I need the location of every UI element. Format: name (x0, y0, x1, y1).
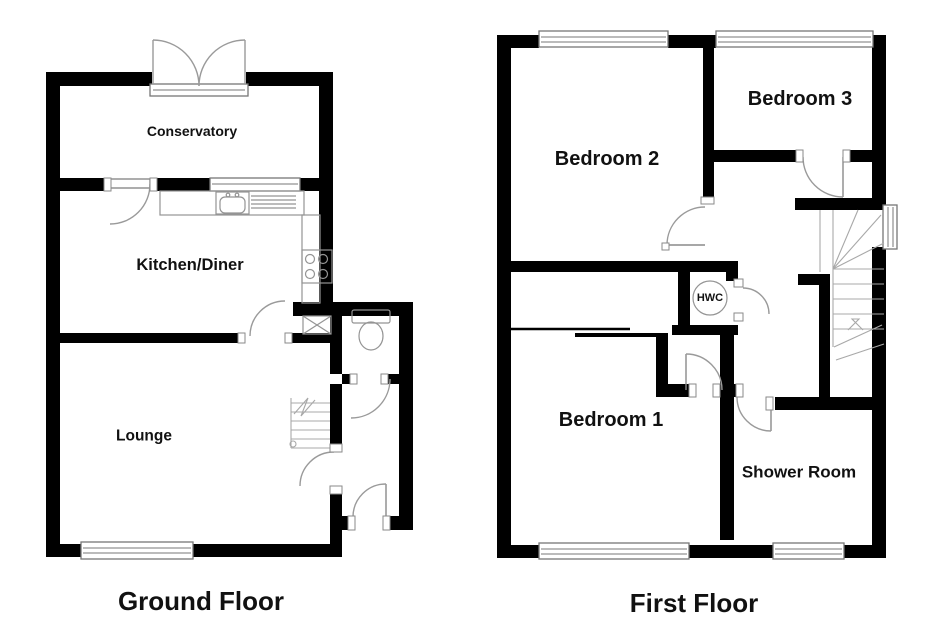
stairs-ground (290, 398, 330, 448)
ground-floor: Conservatory Kitchen/Diner Lounge Ground… (46, 40, 413, 616)
shower-room-window (773, 543, 844, 559)
shower-room-door (736, 384, 773, 431)
kitchen-sink (216, 192, 296, 214)
conservatory-french-doors (150, 40, 248, 96)
title-first-floor: First Floor (630, 588, 759, 618)
stairs-side-window (883, 205, 897, 249)
ground-floor-walls (46, 72, 413, 557)
label-lounge: Lounge (116, 428, 172, 445)
label-kitchen-diner: Kitchen/Diner (136, 256, 244, 274)
wc-door (350, 374, 390, 418)
label-bedroom2: Bedroom 2 (555, 148, 659, 170)
kitchen-conservatory-window (210, 178, 300, 191)
lounge-hall-door (300, 444, 342, 494)
bedroom3-window (716, 31, 873, 47)
lounge-window (81, 542, 193, 559)
bedroom1-window (539, 543, 689, 559)
conservatory-kitchen-door (104, 178, 157, 224)
title-ground-floor: Ground Floor (118, 586, 284, 616)
sink-drainer (251, 196, 296, 208)
bedroom3-door (796, 150, 850, 197)
label-bedroom1: Bedroom 1 (559, 409, 663, 431)
hwc-cupboard-door (734, 279, 769, 321)
front-door (348, 484, 390, 530)
first-floor: HWC Bedroom 2 Bedroom 3 Bedroom 1 Shower… (497, 31, 897, 618)
bedroom2-window (539, 31, 668, 47)
floor-plan-page: Conservatory Kitchen/Diner Lounge Ground… (0, 0, 942, 637)
storage-cupboard-x (303, 316, 331, 334)
floor-plan-svg: Conservatory Kitchen/Diner Lounge Ground… (0, 0, 942, 637)
label-bedroom3: Bedroom 3 (748, 88, 852, 110)
bedroom2-door (662, 197, 714, 250)
label-hwc: HWC (697, 292, 723, 304)
bedroom1-door (686, 354, 722, 397)
label-conservatory: Conservatory (147, 123, 237, 139)
hwc-cylinder: HWC (693, 281, 727, 315)
label-shower-room: Shower Room (742, 463, 856, 482)
kitchen-lounge-door (238, 301, 292, 343)
